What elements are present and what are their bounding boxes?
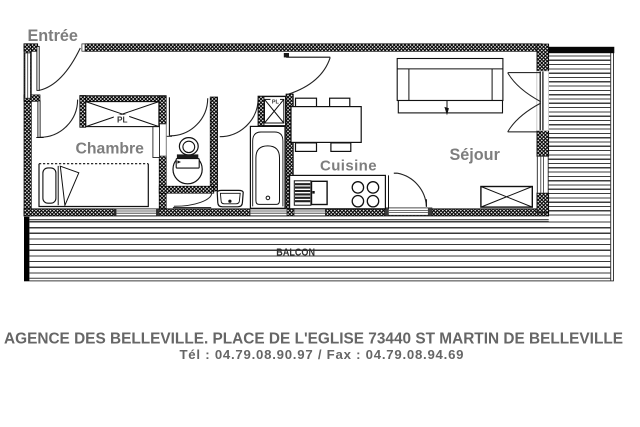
- svg-text:PL: PL: [117, 115, 127, 124]
- svg-text:Entrée: Entrée: [28, 27, 78, 45]
- svg-text:Chambre: Chambre: [76, 141, 145, 158]
- svg-text:Tél : 04.79.08.90.97 / Fax : 0: Tél : 04.79.08.90.97 / Fax : 04.79.08.94…: [180, 347, 464, 362]
- svg-text:BALCON: BALCON: [276, 248, 315, 259]
- svg-text:Cuisine: Cuisine: [320, 157, 377, 174]
- svg-text:PL: PL: [272, 99, 280, 105]
- svg-text:AGENCE DES BELLEVILLE. PLACE: AGENCE DES BELLEVILLE. PLACE DE L'EGLISE…: [4, 330, 623, 347]
- svg-text:Séjour: Séjour: [450, 146, 501, 164]
